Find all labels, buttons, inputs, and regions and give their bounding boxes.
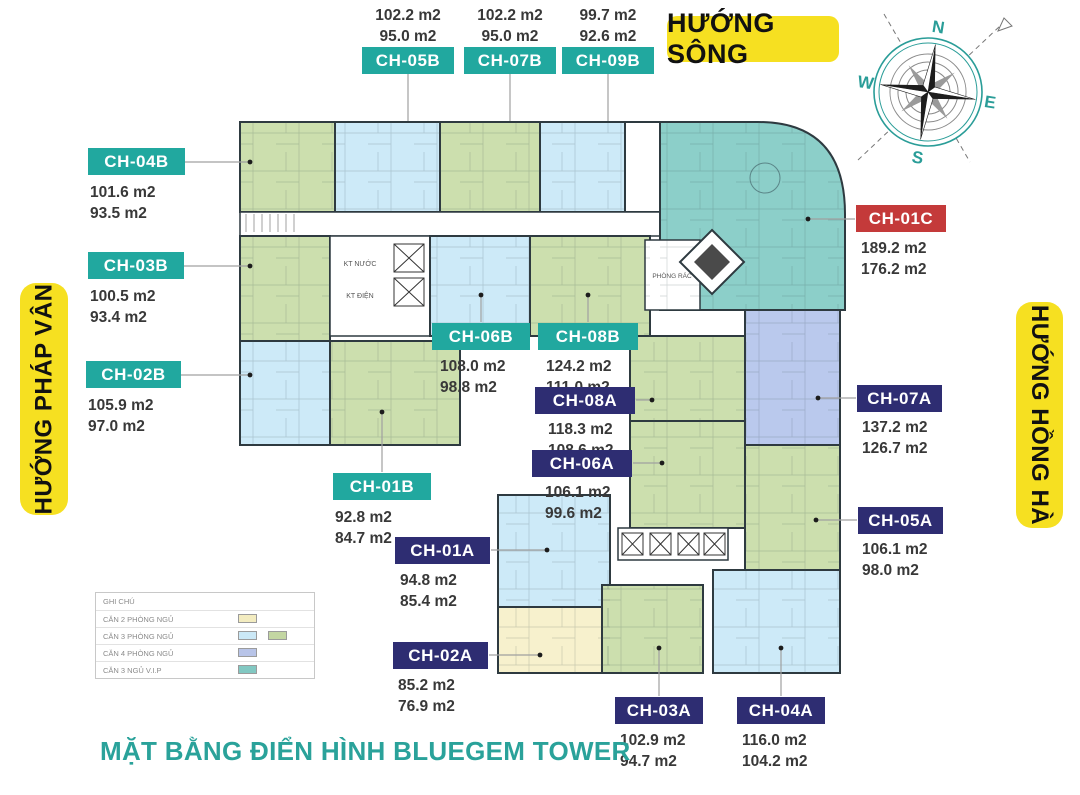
legend-swatch-teal <box>238 665 257 674</box>
unit-chip-ch-04b: CH-04B <box>88 148 185 175</box>
legend-item-2br-label: CĂN 2 PHÒNG NGỦ <box>103 615 173 624</box>
unit-chip-ch-09b: CH-09B <box>562 47 654 74</box>
legend-item-vip-label: CĂN 3 NGỦ V.I.P <box>103 666 162 675</box>
kt-dien-label: KT ĐIỆN <box>346 291 374 300</box>
compass-n: N <box>931 17 946 38</box>
legend-swatch-yellow <box>238 614 257 623</box>
phong-rac-label: PHÒNG RÁC <box>652 271 692 280</box>
legend-swatch-green <box>268 631 287 640</box>
unit-chip-ch-01b: CH-01B <box>333 473 431 500</box>
unit-chip-ch-06b: CH-06B <box>432 323 530 350</box>
banner-huong-hong-ha-text: HƯỚNG HỒNG HÀ <box>1026 305 1054 525</box>
unit-areas-text-ch-03b: 100.5 m293.4 m2 <box>90 286 156 328</box>
unit-chip-ch-02a: CH-02A <box>393 642 488 669</box>
unit-areas-text-ch-01b: 92.8 m284.7 m2 <box>335 507 392 549</box>
legend-swatch-lavender <box>238 648 257 657</box>
legend-item-4br-label: CĂN 4 PHÒNG NGỦ <box>103 649 173 658</box>
unit-chip-ch-01c: CH-01C <box>856 205 946 232</box>
compass-e: E <box>983 92 997 113</box>
service-core <box>625 122 663 212</box>
corridor <box>240 212 663 236</box>
unit-areas-text-ch-04b: 101.6 m293.5 m2 <box>90 182 156 224</box>
unit-chip-ch-07b: CH-07B <box>464 47 556 74</box>
unit-areas-text-ch-01a: 94.8 m285.4 m2 <box>400 570 457 612</box>
unit-chip-ch-04a: CH-04A <box>737 697 825 724</box>
banner-huong-hong-ha: HƯỚNG HỒNG HÀ <box>1016 302 1063 528</box>
legend-item-3br: CĂN 3 PHÒNG NGỦ <box>96 627 314 644</box>
unit-chip-ch-06a: CH-06A <box>532 450 632 477</box>
unit-areas-text-ch-09b: 99.7 m292.6 m2 <box>548 5 668 47</box>
unit-areas-text-ch-05a: 106.1 m298.0 m2 <box>862 539 928 581</box>
unit-chip-ch-01a: CH-01A <box>395 537 490 564</box>
legend-item-2br: CĂN 2 PHÒNG NGỦ <box>96 610 314 627</box>
banner-huong-phap-van: HƯỚNG PHÁP VÂN <box>20 283 68 515</box>
legend-item-vip: CĂN 3 NGỦ V.I.P <box>96 661 314 678</box>
unit-areas-text-ch-07a: 137.2 m2126.7 m2 <box>862 417 928 459</box>
floor-plan-page: KT NƯỚC KT ĐIỆN PHÒNG RÁC <box>0 0 1080 795</box>
unit-chip-ch-03a: CH-03A <box>615 697 703 724</box>
legend-swatch-blue <box>238 631 257 640</box>
compass-rose: N E S W <box>846 7 1012 178</box>
unit-areas-text-ch-02a: 85.2 m276.9 m2 <box>398 675 455 717</box>
unit-areas-text-ch-04a: 116.0 m2104.2 m2 <box>742 730 808 772</box>
unit-chip-ch-05b: CH-05B <box>362 47 454 74</box>
unit-areas-text-ch-01c: 189.2 m2176.2 m2 <box>861 238 927 280</box>
unit-areas-text-ch-02b: 105.9 m297.0 m2 <box>88 395 154 437</box>
legend-title: GHI CHÚ <box>96 593 314 610</box>
unit-chip-ch-07a: CH-07A <box>857 385 942 412</box>
unit-chip-ch-05a: CH-05A <box>858 507 943 534</box>
banner-huong-song: HƯỚNG SÔNG <box>667 16 839 62</box>
unit-chip-ch-03b: CH-03B <box>88 252 184 279</box>
compass-w: W <box>856 72 876 93</box>
legend-item-3br-label: CĂN 3 PHÒNG NGỦ <box>103 632 173 641</box>
compass-arrow <box>998 18 1012 31</box>
page-title: MẶT BẰNG ĐIỂN HÌNH BLUEGEM TOWER <box>100 736 631 767</box>
unit-chip-ch-02b: CH-02B <box>86 361 181 388</box>
legend-title-text: GHI CHÚ <box>103 597 135 606</box>
compass-s: S <box>911 147 925 168</box>
banner-huong-phap-van-text: HƯỚNG PHÁP VÂN <box>30 284 58 515</box>
legend: GHI CHÚ CĂN 2 PHÒNG NGỦ CĂN 3 PHÒNG NGỦ … <box>95 592 315 679</box>
legend-item-4br: CĂN 4 PHÒNG NGỦ <box>96 644 314 661</box>
unit-areas-text-ch-06a: 106.1 m299.6 m2 <box>545 482 611 524</box>
unit-chip-ch-08a: CH-08A <box>535 387 635 414</box>
unit-chip-ch-08b: CH-08B <box>538 323 638 350</box>
kt-nuoc-label: KT NƯỚC <box>344 259 377 268</box>
unit-areas-text-ch-06b: 108.0 m298.8 m2 <box>440 356 506 398</box>
